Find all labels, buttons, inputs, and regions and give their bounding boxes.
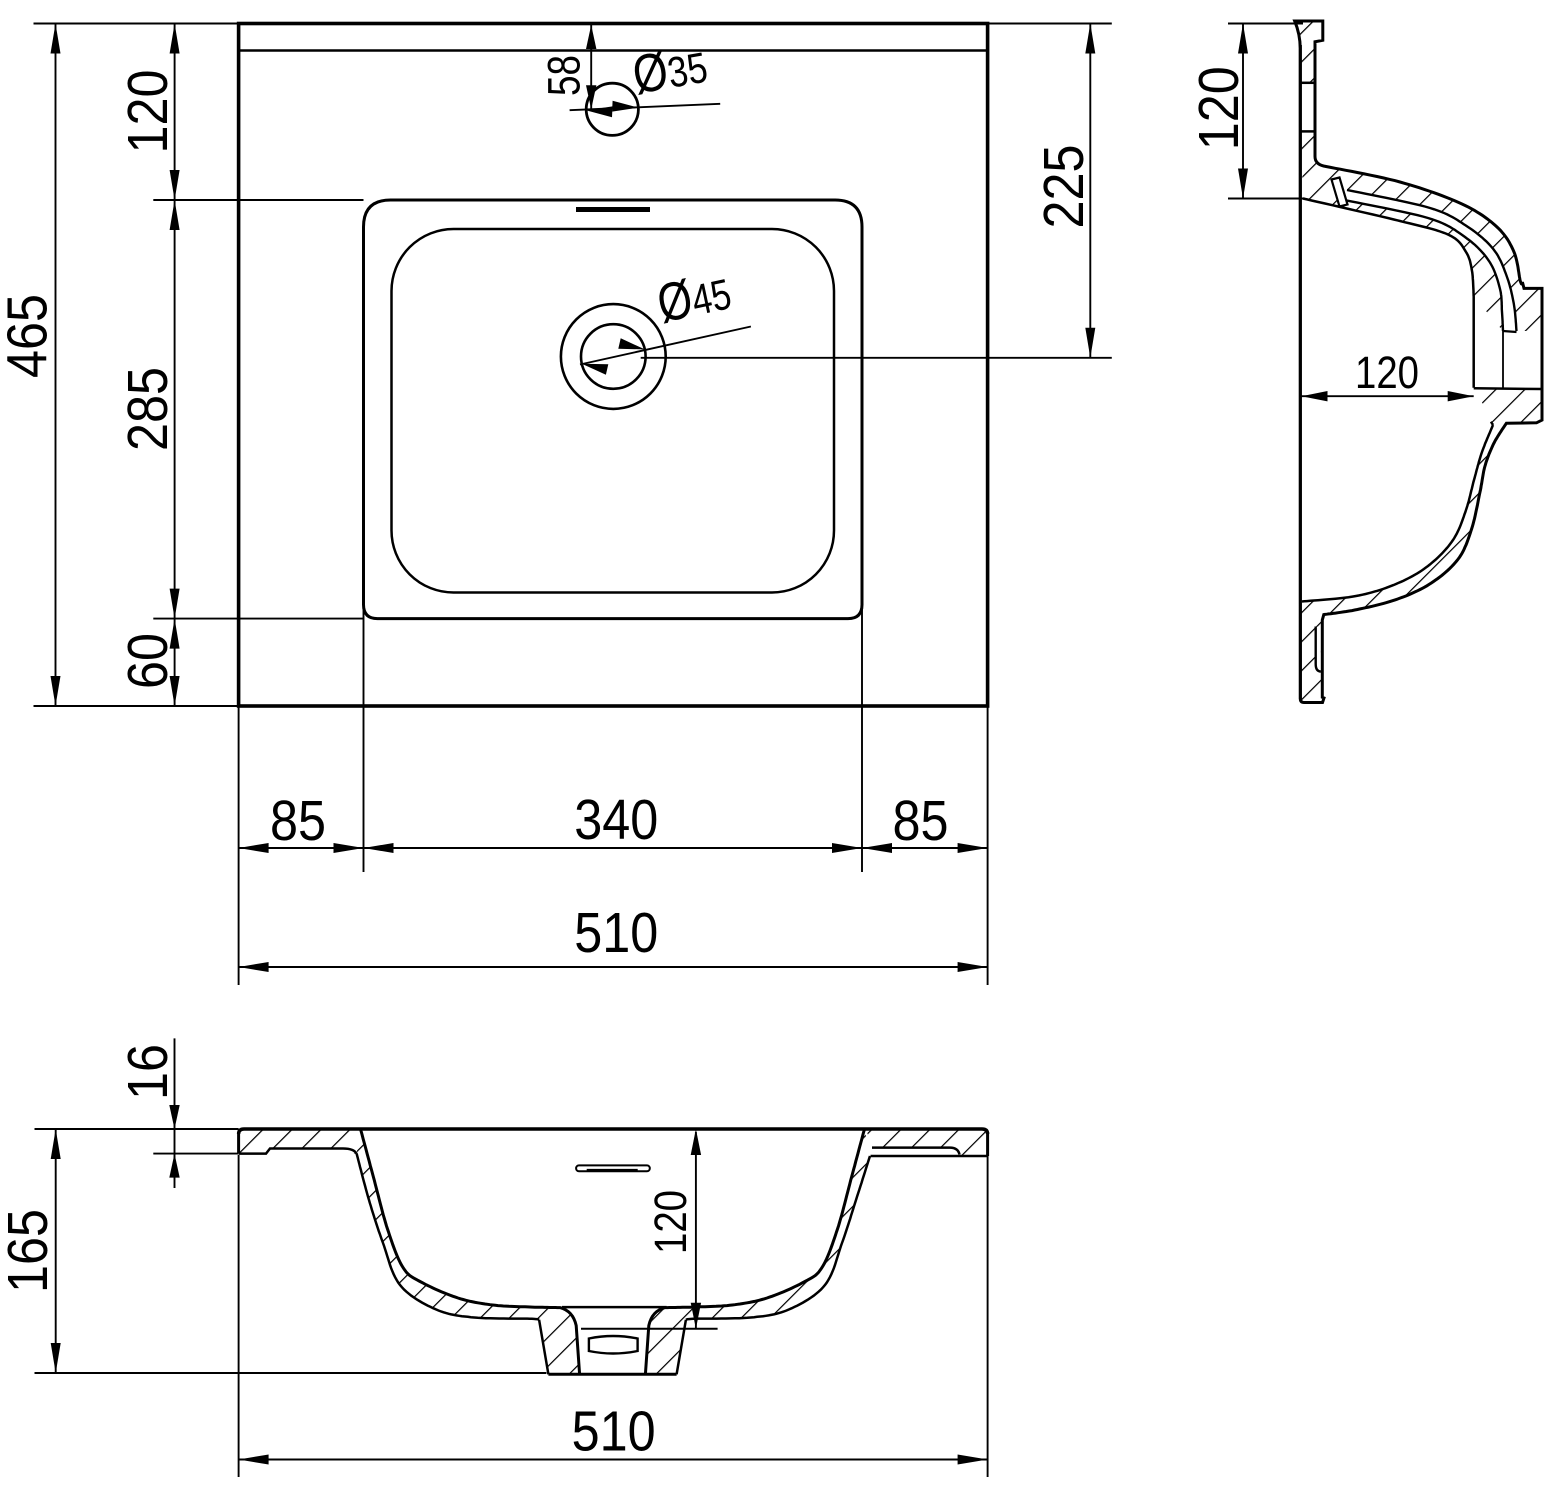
svg-text:120: 120	[116, 70, 180, 154]
svg-text:225: 225	[1032, 145, 1096, 229]
svg-text:165: 165	[0, 1209, 60, 1293]
svg-text:120: 120	[1355, 347, 1419, 398]
svg-text:16: 16	[116, 1044, 180, 1100]
svg-text:58: 58	[539, 55, 590, 96]
svg-text:465: 465	[0, 294, 60, 378]
svg-text:120: 120	[1187, 66, 1251, 150]
svg-text:85: 85	[270, 789, 326, 853]
svg-text:285: 285	[116, 367, 180, 451]
svg-text:340: 340	[574, 788, 658, 852]
svg-text:60: 60	[116, 633, 180, 689]
svg-text:85: 85	[893, 789, 949, 853]
svg-text:510: 510	[574, 901, 658, 965]
svg-text:120: 120	[645, 1190, 696, 1254]
svg-text:510: 510	[572, 1400, 656, 1464]
